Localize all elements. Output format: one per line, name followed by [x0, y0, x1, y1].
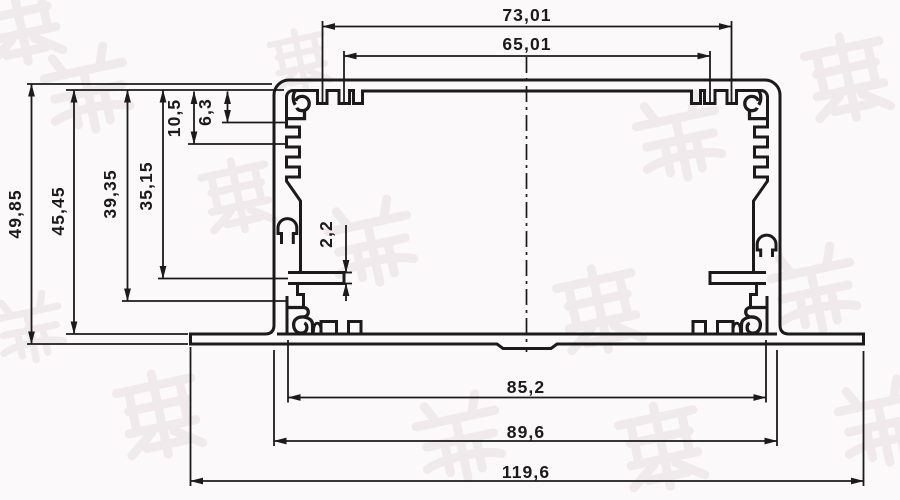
- svg-text:10,5: 10,5: [164, 99, 184, 137]
- svg-text:73,01: 73,01: [502, 5, 551, 25]
- svg-text:65,01: 65,01: [502, 34, 551, 54]
- svg-text:2,2: 2,2: [316, 220, 336, 248]
- svg-text:49,85: 49,85: [5, 189, 25, 238]
- svg-text:89,6: 89,6: [507, 422, 545, 442]
- svg-text:45,45: 45,45: [48, 186, 68, 235]
- svg-text:119,6: 119,6: [502, 462, 550, 482]
- svg-text:6,3: 6,3: [195, 98, 215, 126]
- svg-text:39,35: 39,35: [100, 169, 120, 218]
- svg-text:85,2: 85,2: [507, 377, 545, 397]
- svg-text:35,15: 35,15: [136, 161, 156, 210]
